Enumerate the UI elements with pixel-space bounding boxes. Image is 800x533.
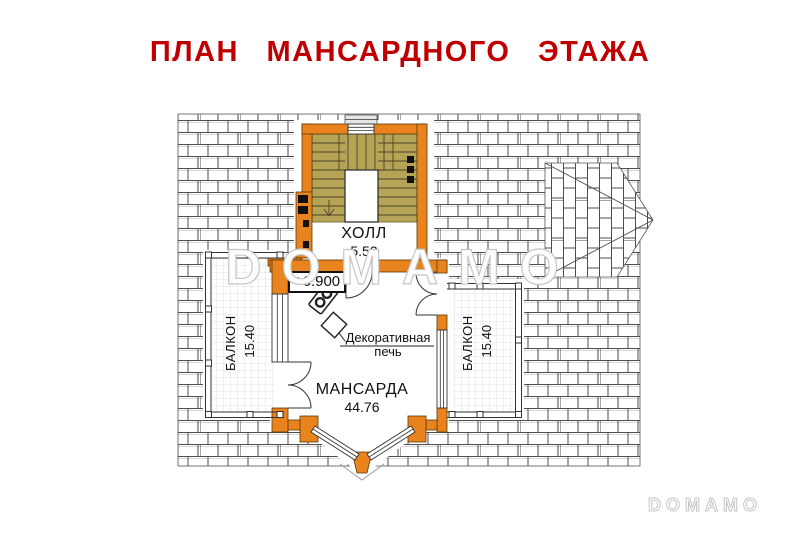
room-name: БАЛКОН [223, 315, 239, 371]
vent-shaft [298, 195, 308, 203]
room-area: 44.76 [307, 399, 417, 416]
room-label-balcony-left: БАЛКОН 15.40 [221, 303, 259, 379]
room-name: МАНСАРДА [307, 380, 417, 399]
floor-plan-page: ПЛАН МАНСАРДНОГО ЭТАЖА ХОЛЛ 5.52 МАНСАРД… [0, 0, 800, 533]
staircase [312, 134, 417, 222]
room-area: 15.40 [242, 325, 258, 358]
stairwell-void [345, 170, 378, 222]
vent-shaft [298, 206, 308, 214]
vent-shafts [407, 156, 414, 183]
room-area: 15.40 [479, 325, 495, 358]
room-label-balcony-right: БАЛКОН 15.40 [458, 303, 496, 379]
stove-label: Декоративная печь [338, 331, 438, 359]
page-title: ПЛАН МАНСАРДНОГО ЭТАЖА [0, 36, 800, 69]
watermark-center: DOMAMO [212, 238, 592, 296]
stove-label-line1: Декоративная [338, 331, 438, 345]
window-hall-top [348, 124, 374, 134]
stove-label-line2: печь [338, 345, 438, 359]
window-right [437, 330, 447, 408]
watermark-corner: DOMAMO [648, 495, 762, 516]
room-label-mansarda: МАНСАРДА 44.76 [307, 380, 417, 416]
vent-shaft [303, 220, 309, 227]
room-name: БАЛКОН [460, 315, 476, 371]
window-left [272, 294, 288, 362]
